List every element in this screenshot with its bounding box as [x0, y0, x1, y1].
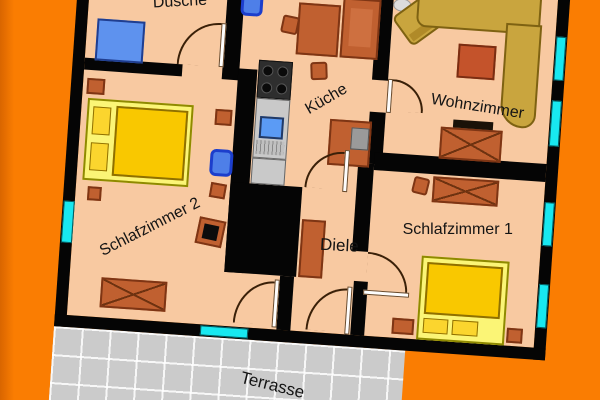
bed-blanket	[424, 262, 503, 319]
kitchen-sink	[259, 116, 284, 140]
tv-sideboard	[439, 127, 503, 163]
bedroom2-nightstand-top	[86, 78, 105, 95]
kitchen-table	[296, 2, 342, 57]
kitchen-chair-blue-1	[240, 0, 264, 17]
bedroom1-nightstand-left	[391, 318, 414, 335]
bed-blanket	[112, 106, 189, 181]
background-edge-shade	[0, 0, 14, 400]
stove	[256, 60, 293, 100]
bedroom2-nightstand-right	[214, 109, 232, 126]
shower-tray	[95, 18, 146, 63]
coffee-table	[456, 44, 496, 81]
bed-pillow	[422, 318, 448, 335]
appliance-door	[350, 127, 369, 150]
room-label-schlafzimmer1: Schlafzimmer 1	[403, 221, 513, 239]
chimney-block	[224, 182, 302, 277]
bedroom1-bed	[416, 256, 510, 346]
bedroom1-wardrobe	[432, 176, 500, 207]
floor-plan: Terrasse Dusche	[54, 0, 571, 360]
bedroom2-chair-blue	[209, 149, 234, 178]
bedroom2-stool-right	[209, 182, 227, 200]
bedroom2-stool-small	[87, 186, 102, 201]
bed-pillow	[89, 142, 109, 171]
cupboard-door	[348, 8, 373, 47]
bed-pillow	[451, 320, 478, 337]
bedroom2-dresser	[99, 277, 167, 312]
room-label-diele: Diele	[319, 235, 359, 257]
bedroom2-bed	[82, 98, 193, 187]
kitchen-cupboard	[339, 0, 381, 60]
bed-pillow	[92, 106, 112, 135]
bedroom1-nightstand-right	[506, 328, 523, 344]
desk-top	[202, 223, 220, 241]
kitchen-cabinet-unit	[250, 158, 286, 186]
kitchen-stool-2	[310, 62, 328, 81]
bedroom2-desk	[194, 216, 226, 248]
sink-drainer	[256, 140, 285, 156]
floorplan-canvas: Terrasse Dusche	[0, 0, 600, 400]
